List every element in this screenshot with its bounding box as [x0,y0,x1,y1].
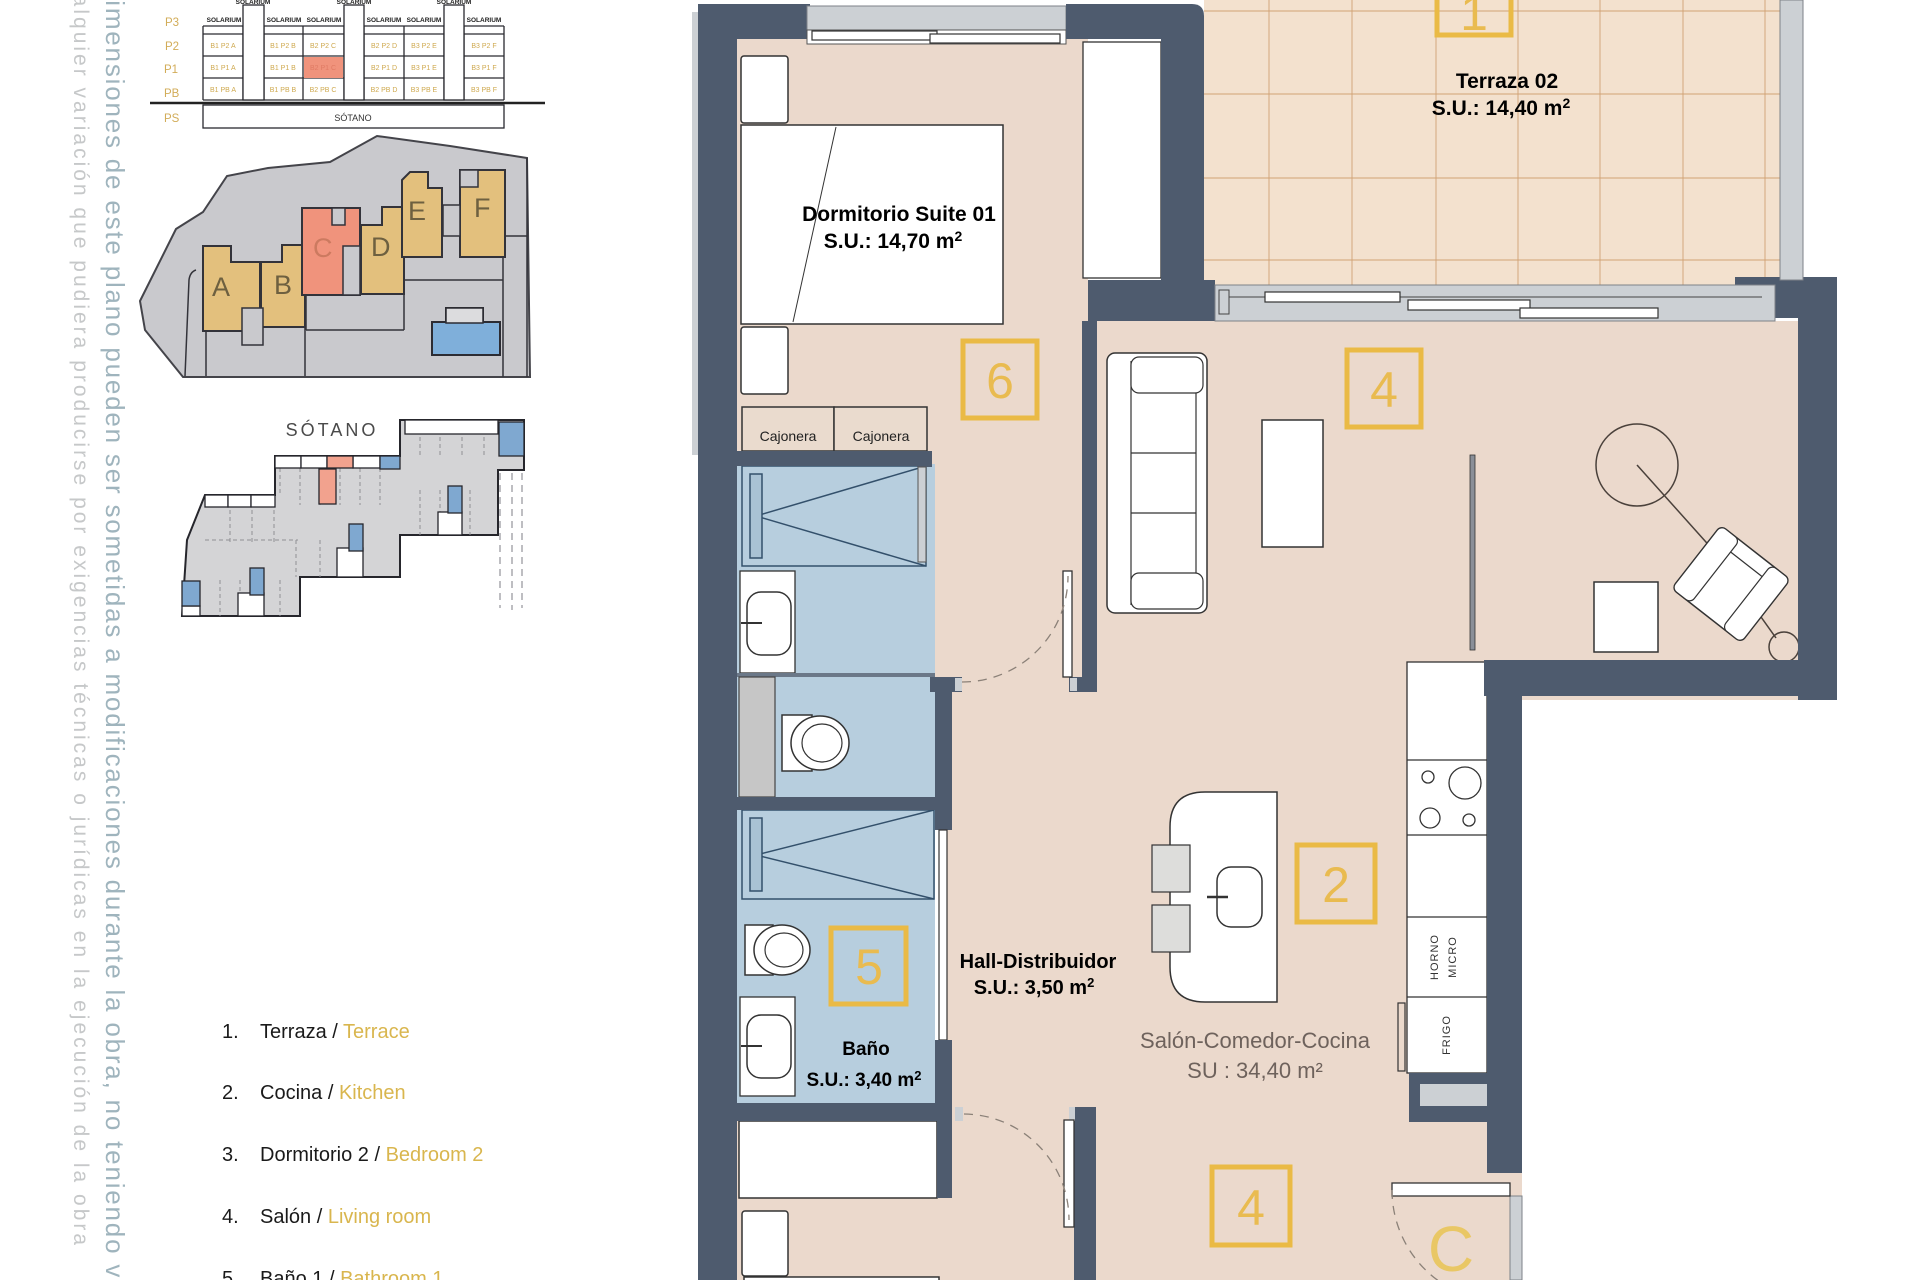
svg-text:Baño 1 / Bathroom 1: Baño 1 / Bathroom 1 [260,1268,443,1280]
svg-text:4: 4 [1370,362,1398,418]
svg-text:Dormitorio Suite 01: Dormitorio Suite 01 [802,203,996,226]
svg-text:Cajonera: Cajonera [760,428,817,444]
svg-text:HORNO: HORNO [1429,934,1441,980]
svg-text:S.U.: 3,40 m2: S.U.: 3,40 m2 [807,1068,922,1091]
svg-text:Terraza 02: Terraza 02 [1456,70,1558,93]
svg-text:A: A [212,272,230,302]
svg-text:SOLARIUM: SOLARIUM [407,17,442,24]
svg-text:SOLARIUM: SOLARIUM [307,17,342,24]
svg-text:F: F [474,193,491,223]
svg-text:B2 P1 D: B2 P1 D [371,65,397,72]
svg-text:PS: PS [164,113,180,125]
svg-text:B3 P2 E: B3 P2 E [411,43,437,50]
svg-text:C: C [1428,1213,1474,1280]
svg-text:B: B [274,270,292,300]
svg-text:S.U.: 14,70 m2: S.U.: 14,70 m2 [824,228,963,253]
svg-text:SOLARIUM: SOLARIUM [236,0,271,6]
svg-text:C: C [313,233,333,263]
svg-text:D: D [371,232,391,262]
svg-text:B3 P2 F: B3 P2 F [471,43,496,50]
svg-text:SOLARIUM: SOLARIUM [437,0,472,6]
svg-text:Baño: Baño [842,1039,890,1060]
svg-text:5.: 5. [222,1268,239,1280]
svg-text:1: 1 [1460,0,1488,41]
svg-text:Cocina / Kitchen: Cocina / Kitchen [260,1082,406,1104]
svg-text:S.U.: 14,40 m2: S.U.: 14,40 m2 [1432,95,1571,120]
svg-text:Salón-Comedor-Cocina: Salón-Comedor-Cocina [1140,1028,1371,1053]
svg-text:B1 P1 B: B1 P1 B [270,65,296,72]
svg-text:B1 PB A: B1 PB A [210,87,236,94]
svg-text:4.: 4. [222,1206,239,1228]
svg-text:4: 4 [1237,1180,1265,1236]
svg-text:PB: PB [164,88,180,100]
svg-text:E: E [408,196,426,226]
svg-text:Dormitorio 2 / Bedroom 2: Dormitorio 2 / Bedroom 2 [260,1144,483,1166]
svg-text:P2: P2 [165,41,179,53]
svg-text:B1 P2 A: B1 P2 A [210,43,236,50]
svg-text:B3 PB E: B3 PB E [411,87,438,94]
svg-text:SOLARIUM: SOLARIUM [337,0,372,6]
svg-text:B1 PB B: B1 PB B [270,87,297,94]
svg-text:SÓTANO: SÓTANO [286,419,379,440]
svg-text:B2 P2 C: B2 P2 C [310,43,336,50]
svg-text:B3 P1 E: B3 P1 E [411,65,437,72]
svg-text:FRIGO: FRIGO [1441,1015,1453,1055]
svg-text:Cajonera: Cajonera [853,428,910,444]
svg-text:B2 PB C: B2 PB C [310,87,337,94]
svg-text:B2 P1 C: B2 P1 C [310,65,336,72]
svg-text:6: 6 [986,353,1014,409]
svg-text:B3 PB F: B3 PB F [471,87,497,94]
svg-text:P3: P3 [165,17,179,29]
svg-text:MICRO: MICRO [1447,936,1459,978]
svg-text:Terraza / Terrace: Terraza / Terrace [260,1021,410,1043]
svg-text:S.U.: 3,50 m2: S.U.: 3,50 m2 [974,975,1095,999]
svg-text:SU : 34,40 m²: SU : 34,40 m² [1187,1058,1323,1083]
svg-text:P1: P1 [164,64,178,76]
svg-text:dimensiones de este plano pued: dimensiones de este plano pueden ser som… [100,0,130,1280]
svg-text:Hall-Distribuidor: Hall-Distribuidor [960,951,1117,973]
svg-text:2: 2 [1322,857,1350,913]
svg-text:SOLARIUM: SOLARIUM [207,17,242,24]
svg-text:SOLARIUM: SOLARIUM [267,17,302,24]
svg-text:B1 P2 B: B1 P2 B [270,43,296,50]
svg-text:B2 P2 D: B2 P2 D [371,43,397,50]
svg-text:3.: 3. [222,1144,239,1166]
svg-text:SOLARIUM: SOLARIUM [367,17,402,24]
svg-text:B3 P1 F: B3 P1 F [471,65,496,72]
svg-text:2.: 2. [222,1082,239,1104]
svg-text:ualquier variación que pudiera: ualquier variación que pudiera producirs… [69,0,92,1248]
svg-text:B1 P1 A: B1 P1 A [210,65,236,72]
svg-text:SÓTANO: SÓTANO [334,113,371,123]
svg-text:SOLARIUM: SOLARIUM [467,17,502,24]
svg-text:1.: 1. [222,1021,239,1043]
svg-text:B2 PB D: B2 PB D [371,87,398,94]
svg-text:Salón / Living room: Salón / Living room [260,1206,431,1228]
svg-text:5: 5 [855,939,883,995]
